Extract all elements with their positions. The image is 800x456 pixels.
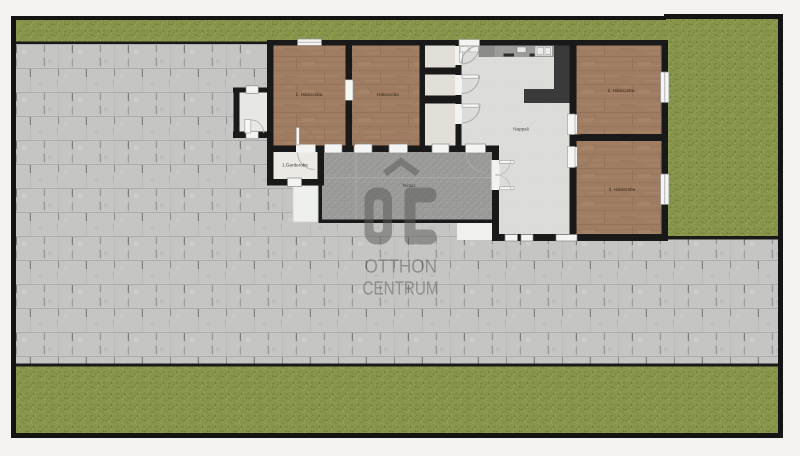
svg-text:Hálószoba: Hálószoba — [377, 92, 399, 97]
svg-text:Nappali: Nappali — [513, 127, 529, 132]
svg-text:1.Garderobe: 1.Garderobe — [282, 163, 308, 168]
svg-text:1. Hálószoba: 1. Hálószoba — [296, 92, 323, 97]
svg-text:Terasz: Terasz — [402, 183, 416, 188]
svg-text:3. Hálószoba: 3. Hálószoba — [609, 187, 636, 192]
svg-text:OTTHON: OTTHON — [365, 256, 438, 277]
svg-text:2. Hálószoba: 2. Hálószoba — [608, 88, 635, 93]
svg-text:CENTRUM: CENTRUM — [363, 278, 439, 299]
